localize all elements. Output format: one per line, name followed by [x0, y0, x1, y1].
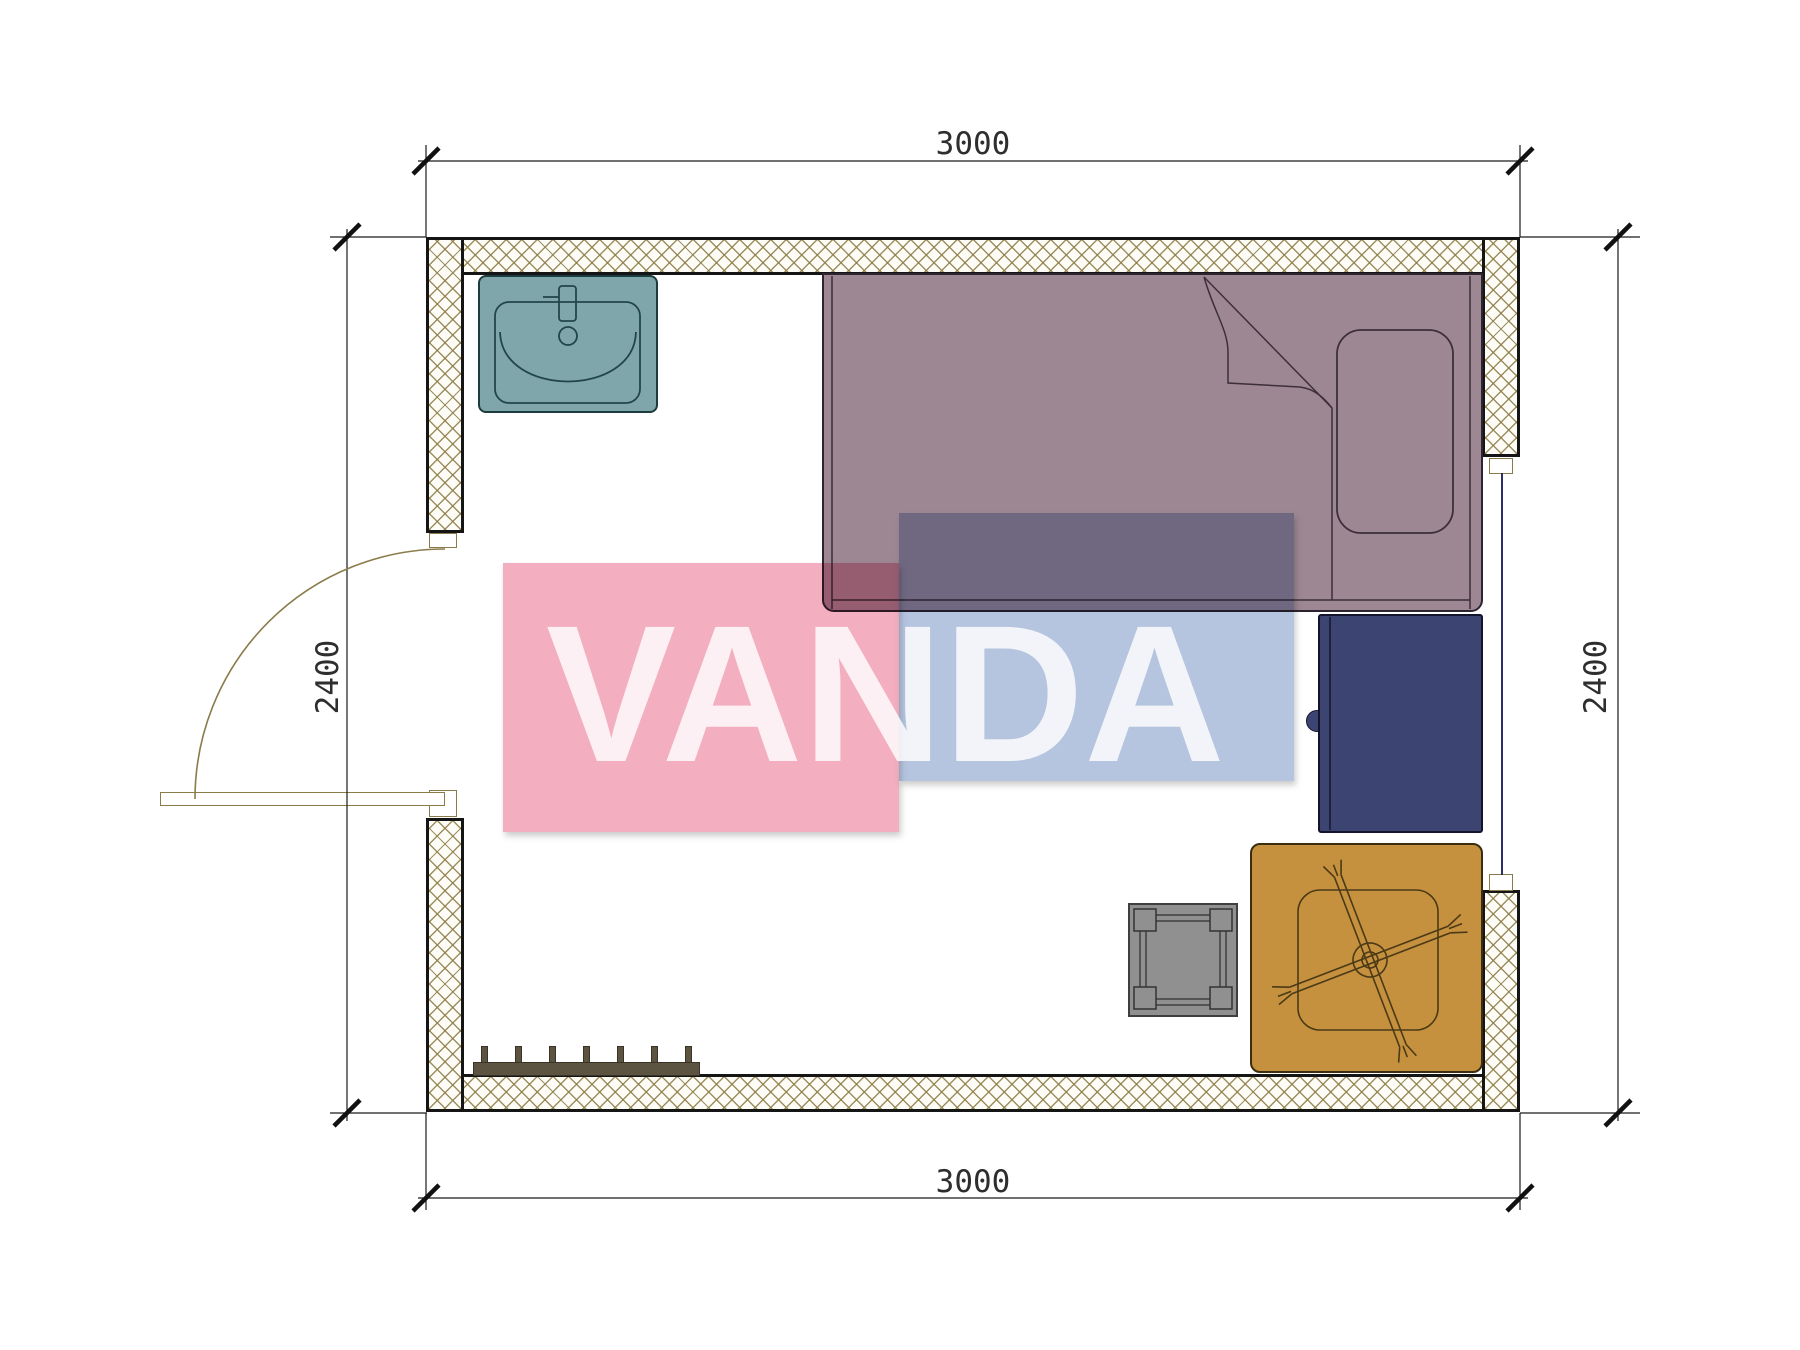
- table-details: [1238, 827, 1502, 1095]
- stool-leg: [1134, 987, 1156, 1009]
- stool-frame-inner: [1146, 921, 1220, 999]
- door-swing-arc: [195, 549, 445, 799]
- floor-plan: 3000 3000 2400 2400: [0, 0, 1800, 1350]
- sink-drain: [559, 327, 577, 345]
- table-fan-icon: [1238, 827, 1502, 1095]
- table-inner-top: [1298, 890, 1438, 1030]
- sink-basin-curve: [500, 332, 636, 382]
- stool-leg: [1210, 909, 1232, 931]
- stool-details: [1134, 909, 1232, 1009]
- faucet-icon: [559, 286, 576, 321]
- stool-leg: [1210, 987, 1232, 1009]
- pillow: [1337, 330, 1453, 533]
- sink-details: [495, 286, 640, 403]
- sink-basin-rim: [495, 302, 640, 403]
- stool-leg: [1134, 909, 1156, 931]
- blanket-fold-crease: [1204, 277, 1332, 408]
- watermark-text: VANDA: [546, 622, 1306, 767]
